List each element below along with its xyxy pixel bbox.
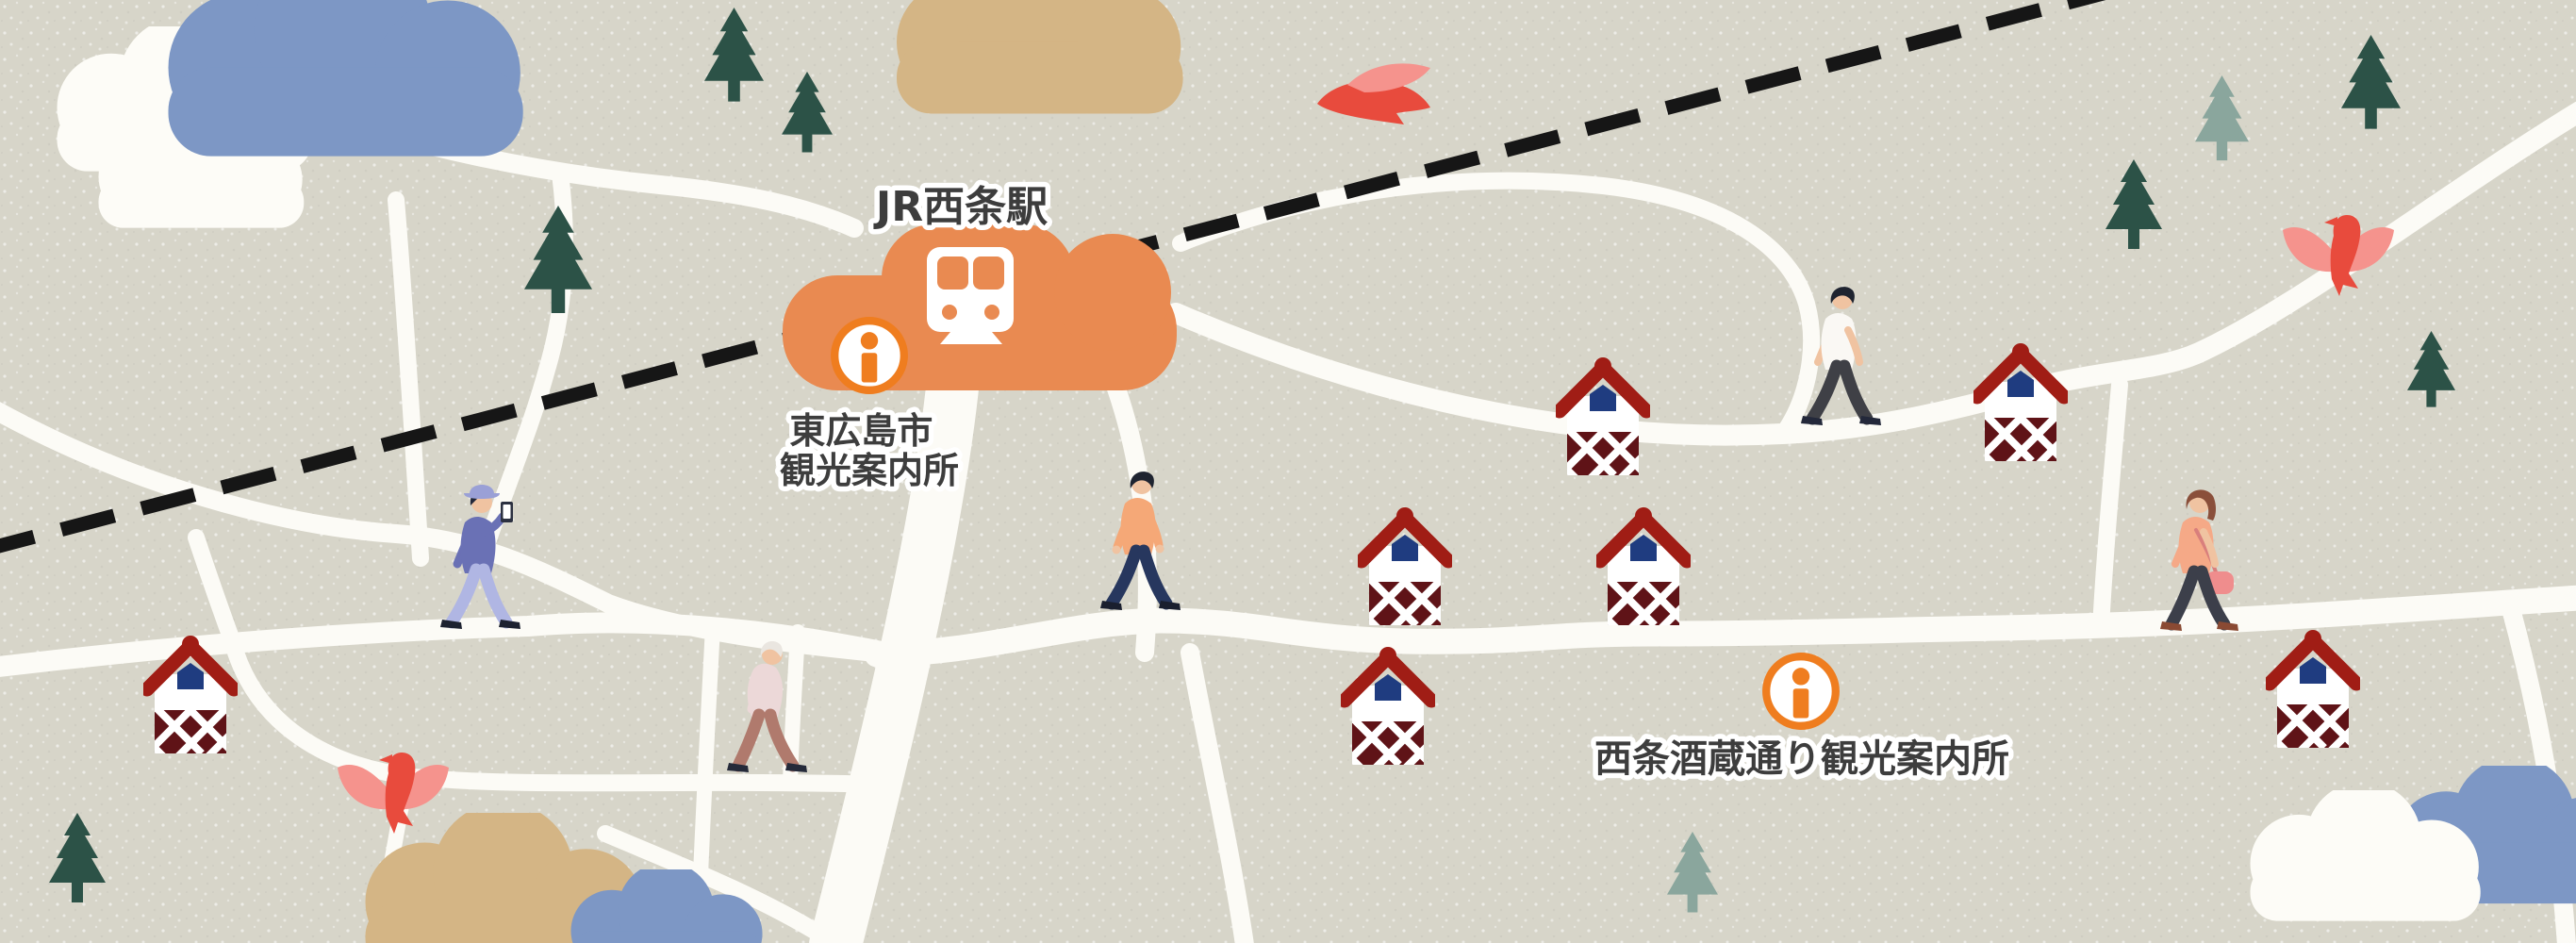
cloud <box>897 0 1183 114</box>
station-label: JR西条駅 <box>873 183 1048 231</box>
info-icon[interactable] <box>834 321 904 390</box>
info-center-label-1: 東広島市 観光案内所 <box>780 410 959 491</box>
map-illustration: JR西条駅 東広島市 観光案内所 西条酒蔵通り観光案内所 <box>0 0 2576 943</box>
saijo-tourist-map: JR西条駅 東広島市 観光案内所 西条酒蔵通り観光案内所 <box>0 0 2576 943</box>
info-center-label-2: 西条酒蔵通り観光案内所 <box>1594 737 2009 781</box>
info-icon[interactable] <box>1766 656 1836 726</box>
train-front-icon <box>927 247 1014 344</box>
cloud <box>169 0 523 157</box>
